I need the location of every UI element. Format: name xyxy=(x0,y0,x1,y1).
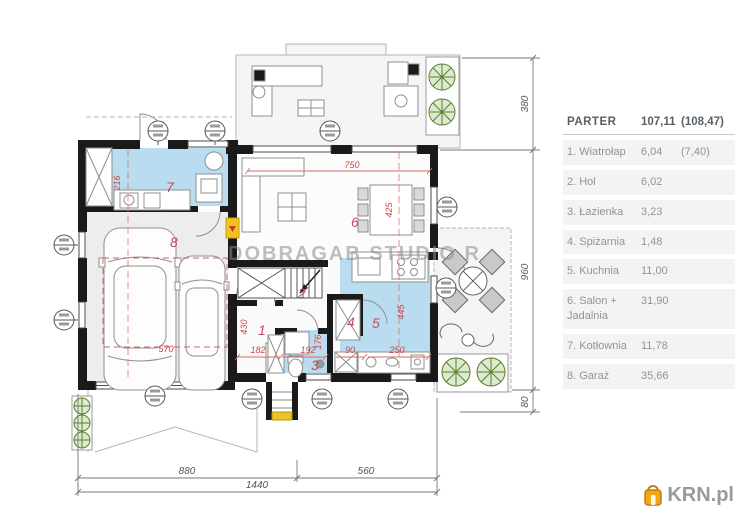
legend-row-label: 4. Spiżarnia xyxy=(567,235,641,250)
dim-960: 960 xyxy=(520,263,531,280)
floor-plan-page: 216 750 425 445 250 90 176 192 182 430 5… xyxy=(0,0,740,516)
krn-house-icon xyxy=(642,482,664,508)
legend-row: 2. Hol 6,02 xyxy=(563,170,735,195)
legend-row: 4. Spiżarnia 1,48 xyxy=(563,230,735,255)
dim-182: 182 xyxy=(250,345,265,355)
dim-250: 250 xyxy=(388,345,404,355)
floor-plan-drawing: 216 750 425 445 250 90 176 192 182 430 5… xyxy=(0,0,555,516)
legend-row-label: 1. Wiatrołap xyxy=(567,145,641,160)
legend-row-area: 6,02 xyxy=(641,175,681,190)
legend-row-area: 1,48 xyxy=(641,235,681,250)
dim-425: 425 xyxy=(384,202,394,218)
dim-216: 216 xyxy=(112,175,122,191)
room-legend: PARTER 107,11 (108,47) 1. Wiatrołap 6,04… xyxy=(563,112,735,389)
legend-total-alt: (108,47) xyxy=(681,116,733,128)
dim-880: 880 xyxy=(179,466,196,477)
legend-row-label: 5. Kuchnia xyxy=(567,264,641,279)
legend-row-extra xyxy=(681,205,733,220)
legend-row-area: 6,04 xyxy=(641,145,681,160)
legend-total: 107,11 xyxy=(641,116,681,128)
legend-row-extra xyxy=(681,294,733,324)
dim-560: 560 xyxy=(358,466,375,477)
legend-row-extra xyxy=(681,235,733,250)
dim-1440: 1440 xyxy=(246,480,269,491)
dim-430: 430 xyxy=(239,319,249,334)
dim-80: 80 xyxy=(520,396,531,408)
legend-row: 7. Kotłownia 11,78 xyxy=(563,334,735,359)
room-3: 3 xyxy=(311,357,319,373)
porch-steps xyxy=(272,392,292,420)
legend-row: 6. Salon + Jadalnia 31,90 xyxy=(563,289,735,329)
legend-row-label: 6. Salon + Jadalnia xyxy=(567,294,641,324)
legend-row-area: 35,66 xyxy=(641,369,681,384)
room-6: 6 xyxy=(351,214,359,230)
legend-row-label: 8. Garaż xyxy=(567,369,641,384)
dim-192: 192 xyxy=(300,345,315,355)
legend-title: PARTER xyxy=(567,116,641,128)
legend-row: 5. Kuchnia 11,00 xyxy=(563,259,735,284)
legend-row: 3. Łazienka 3,23 xyxy=(563,200,735,225)
room-4: 4 xyxy=(347,314,355,330)
legend-row-area: 3,23 xyxy=(641,205,681,220)
room-5: 5 xyxy=(372,315,380,331)
legend-row-extra xyxy=(681,264,733,279)
krn-logo-text: KRN.pl xyxy=(667,484,734,507)
legend-row-area: 11,00 xyxy=(641,264,681,279)
legend-header: PARTER 107,11 (108,47) xyxy=(563,112,735,135)
room-7: 7 xyxy=(166,179,175,195)
legend-row-extra: (7,40) xyxy=(681,145,733,160)
legend-row-area: 31,90 xyxy=(641,294,681,324)
dim-750: 750 xyxy=(344,160,359,170)
legend-row-extra xyxy=(681,175,733,190)
legend-row: 1. Wiatrołap 6,04 (7,40) xyxy=(563,140,735,165)
dim-380: 380 xyxy=(520,95,531,112)
gas-box xyxy=(226,218,239,238)
legend-row-label: 7. Kotłownia xyxy=(567,339,641,354)
legend-row: 8. Garaż 35,66 xyxy=(563,364,735,389)
stairs xyxy=(238,268,322,298)
room-8: 8 xyxy=(170,234,178,250)
legend-row-extra xyxy=(681,339,733,354)
legend-row-label: 3. Łazienka xyxy=(567,205,641,220)
room-2: 2 xyxy=(297,285,306,301)
dim-570: 570 xyxy=(158,344,173,354)
krn-logo[interactable]: KRN.pl xyxy=(642,482,734,508)
room-1: 1 xyxy=(258,322,266,338)
dim-445: 445 xyxy=(396,304,406,320)
dim-90: 90 xyxy=(345,345,355,355)
legend-row-extra xyxy=(681,369,733,384)
legend-row-label: 2. Hol xyxy=(567,175,641,190)
legend-row-area: 11,78 xyxy=(641,339,681,354)
